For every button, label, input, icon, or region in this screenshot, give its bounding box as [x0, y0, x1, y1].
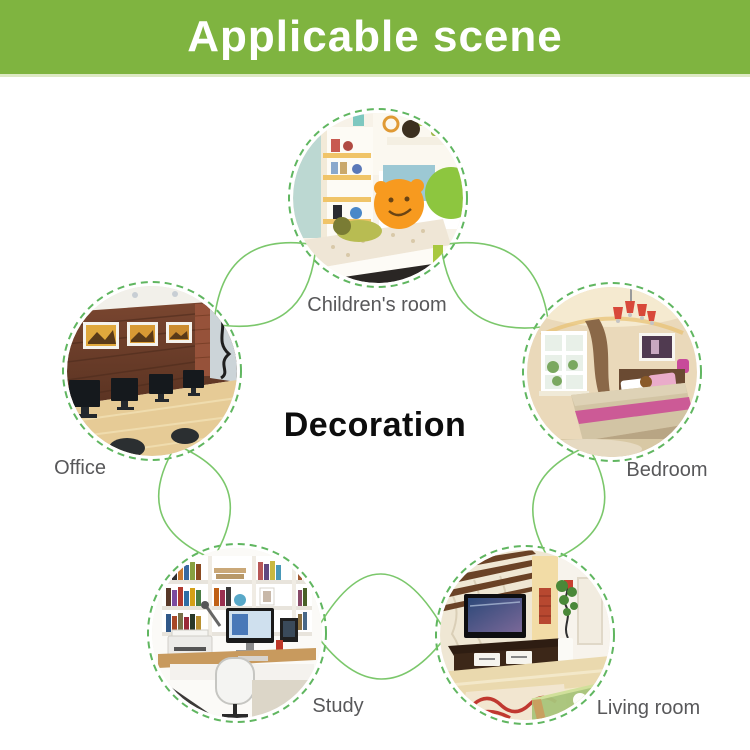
study-label: Study — [298, 695, 378, 717]
bedroom-photo — [527, 287, 697, 457]
living-room-photo — [440, 550, 610, 720]
office-photo — [67, 286, 237, 456]
center-label: Decoration — [255, 406, 495, 445]
study-photo — [152, 548, 322, 718]
children-room-illustration — [293, 113, 463, 283]
children-room-photo — [293, 113, 463, 283]
bedroom-illustration — [527, 287, 697, 457]
study-illustration — [152, 548, 322, 718]
office-label: Office — [30, 457, 130, 479]
petal-bedroom-living — [533, 446, 605, 561]
poster: Applicable scene — [0, 0, 750, 750]
petal-office-study — [159, 445, 231, 559]
children-room-label: Children's room — [282, 294, 472, 316]
office-illustration — [67, 286, 237, 456]
living-room-label: Living room — [586, 697, 711, 719]
petal-study-living — [315, 574, 447, 679]
bedroom-label: Bedroom — [612, 459, 722, 481]
living-room-illustration — [440, 550, 610, 720]
